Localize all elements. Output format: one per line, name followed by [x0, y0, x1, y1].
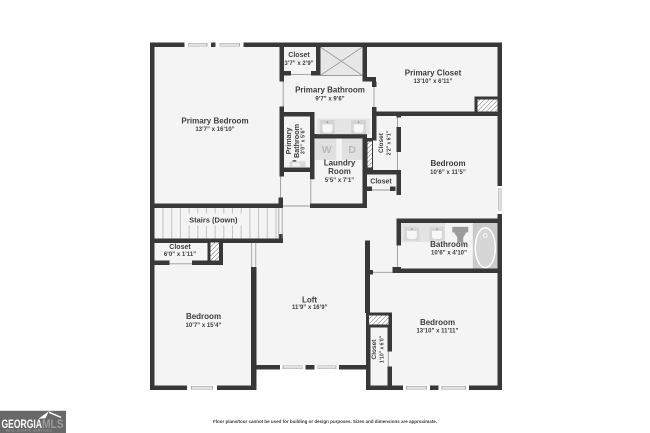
- svg-text:13’10” x 6’11”: 13’10” x 6’11”: [413, 79, 452, 85]
- svg-text:Floor plans/tour cannot be use: Floor plans/tour cannot be used for buil…: [213, 419, 437, 424]
- svg-text:10’6” x 4’10”: 10’6” x 4’10”: [431, 251, 467, 257]
- svg-text:D: D: [348, 144, 356, 156]
- svg-text:3’7” x 2’9”: 3’7” x 2’9”: [284, 61, 313, 67]
- svg-text:W: W: [322, 144, 332, 156]
- svg-text:Room: Room: [328, 167, 351, 176]
- svg-text:Bedroom: Bedroom: [186, 312, 221, 321]
- svg-text:3’0” x 5’6”: 3’0” x 5’6”: [300, 128, 306, 155]
- svg-text:Closet: Closet: [371, 339, 378, 360]
- svg-text:Closet: Closet: [288, 52, 310, 59]
- svg-text:2’2” x 6’1”: 2’2” x 6’1”: [387, 130, 393, 155]
- svg-text:Loft: Loft: [302, 295, 317, 304]
- svg-text:13’10” x 11’11”: 13’10” x 11’11”: [416, 328, 458, 334]
- svg-text:10’6” x 11’5”: 10’6” x 11’5”: [430, 170, 466, 176]
- svg-text:Bedroom: Bedroom: [420, 318, 455, 327]
- svg-text:Closet: Closet: [370, 178, 392, 185]
- svg-text:6’0” x 1’11”: 6’0” x 1’11”: [164, 252, 196, 258]
- svg-text:Closet: Closet: [378, 132, 385, 153]
- svg-text:13’7” x 16’10”: 13’7” x 16’10”: [195, 127, 234, 133]
- svg-text:Primary Bedroom: Primary Bedroom: [181, 116, 248, 125]
- svg-text:Stairs (Down): Stairs (Down): [189, 216, 238, 225]
- svg-text:11’9” x 16’9”: 11’9” x 16’9”: [292, 305, 328, 311]
- svg-text:1’10” x 6’0”: 1’10” x 6’0”: [380, 335, 386, 363]
- svg-text:5’5” x 7’1”: 5’5” x 7’1”: [325, 178, 354, 184]
- svg-text:10’7” x 15’4”: 10’7” x 15’4”: [185, 323, 221, 329]
- svg-text:9’7” x 9’6”: 9’7” x 9’6”: [315, 97, 344, 103]
- svg-text:REAL ESTATE SERVICES: REAL ESTATE SERVICES: [6, 428, 53, 432]
- svg-text:Bathroom: Bathroom: [430, 240, 468, 249]
- svg-text:Primary Bathroom: Primary Bathroom: [295, 86, 365, 95]
- svg-text:Primary Closet: Primary Closet: [405, 69, 462, 78]
- svg-text:Bedroom: Bedroom: [430, 159, 465, 168]
- svg-text:Closet: Closet: [169, 244, 191, 251]
